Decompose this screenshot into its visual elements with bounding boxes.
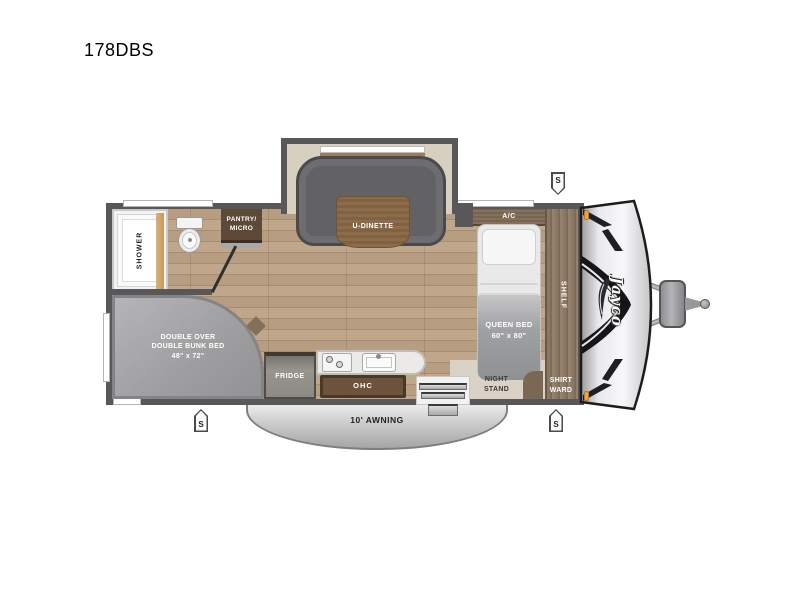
jayco-logo: Jayco	[608, 277, 626, 327]
marker-light	[584, 210, 589, 220]
dinette-table: U-DINETTE	[336, 196, 410, 248]
dinette-label: U-DINETTE	[353, 212, 394, 231]
awning: 10' AWNING	[246, 401, 508, 450]
awning-label: 10' AWNING	[350, 415, 403, 425]
ac-label: A/C	[502, 212, 516, 221]
propane-cover	[659, 280, 686, 328]
night-stand: NIGHT STAND	[470, 370, 523, 399]
queen-bed: QUEEN BED 60" x 80"	[477, 224, 541, 378]
queen-bed-label: QUEEN BED 60" x 80"	[485, 320, 532, 354]
fridge: FRIDGE	[264, 352, 316, 399]
speaker-label: S	[551, 411, 562, 431]
burner-icon	[326, 356, 333, 363]
burner-icon	[336, 361, 343, 368]
ohc-label: OHC	[353, 381, 373, 391]
hitch-ball	[700, 299, 710, 309]
wardrobe-corner	[523, 371, 543, 399]
floorplan-canvas: 178DBS 10' AWNING SHOWER PANTRY/ MICRO D…	[0, 0, 800, 600]
bunk-label: DOUBLE OVER DOUBLE BUNK BED 48" x 72"	[152, 333, 225, 361]
entry-step	[419, 383, 467, 390]
model-title: 178DBS	[84, 40, 154, 61]
pillow	[482, 229, 536, 265]
marker-light	[584, 391, 589, 401]
night-stand-label: NIGHT STAND	[484, 375, 509, 394]
hitch-coupler	[685, 296, 701, 312]
shower-seat	[156, 213, 164, 292]
entry-step	[428, 404, 458, 416]
slideout-window	[320, 146, 425, 153]
pantry-label: PANTRY/ MICRO	[227, 216, 257, 234]
speaker-label: S	[196, 411, 207, 431]
speaker-icon: S	[551, 172, 565, 195]
shirt-ward-label: SHIRT WARD	[550, 376, 573, 395]
overhead-cabinet: OHC	[320, 375, 406, 398]
fridge-label: FRIDGE	[275, 372, 304, 381]
speaker-icon: S	[549, 409, 563, 432]
shelf-label: SHELF	[559, 281, 566, 309]
toilet-flush	[188, 238, 192, 242]
window-top-left	[123, 200, 213, 207]
faucet-icon	[376, 354, 381, 359]
entry-step	[421, 392, 465, 399]
pantry-micro-cabinet: PANTRY/ MICRO	[221, 209, 262, 243]
shirt-wardrobe: SHIRT WARD	[541, 372, 581, 399]
speaker-label: S	[553, 174, 564, 194]
blanket: QUEEN BED 60" x 80"	[478, 293, 540, 380]
shelf-wardrobe: SHELF	[545, 209, 578, 399]
speaker-icon: S	[194, 409, 208, 432]
shower: SHOWER	[112, 209, 168, 292]
shower-label: SHOWER	[137, 232, 144, 270]
window-rear	[103, 313, 110, 382]
window-bottom-left	[113, 398, 141, 405]
pantry-ledge	[221, 243, 262, 248]
entry-door	[416, 376, 470, 405]
sheet-fold	[480, 283, 538, 285]
